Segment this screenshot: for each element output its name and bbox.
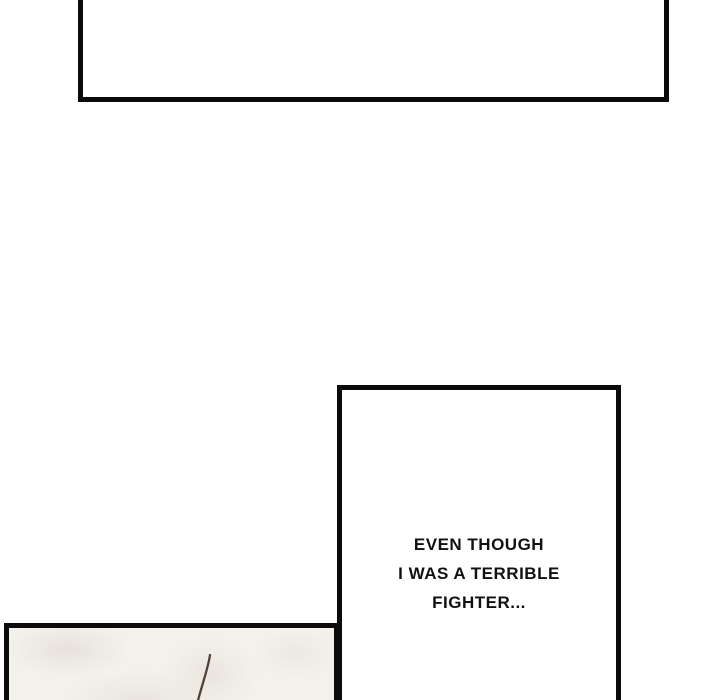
comic-page: EVEN THOUGH I WAS A TERRIBLE FIGHTER... <box>0 0 720 700</box>
speech-line: EVEN THOUGH <box>342 530 616 559</box>
comic-panel-art <box>4 623 339 700</box>
comic-panel-speech: EVEN THOUGH I WAS A TERRIBLE FIGHTER... <box>337 385 621 700</box>
speech-text: EVEN THOUGH I WAS A TERRIBLE FIGHTER... <box>342 390 616 617</box>
speech-line: I WAS A TERRIBLE <box>342 559 616 588</box>
stick-blade-drawing <box>9 628 334 700</box>
speech-line: FIGHTER... <box>342 588 616 617</box>
stick-line <box>196 655 210 700</box>
comic-panel-top <box>78 0 669 102</box>
